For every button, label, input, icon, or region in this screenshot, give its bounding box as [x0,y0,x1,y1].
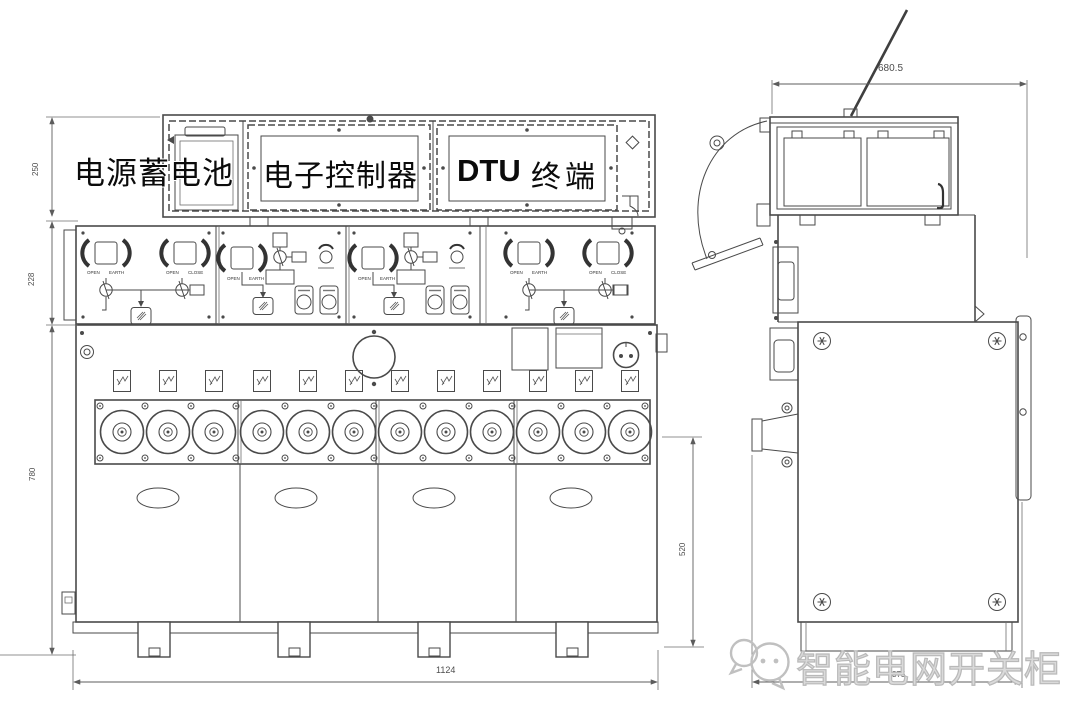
side-view [662,10,1031,688]
dim-overall-width: 1124 [436,665,455,675]
knob-label-open: OPEN [87,270,100,275]
cable-spout [762,414,798,453]
knob-label-close: CLOSE [188,270,203,275]
knob-label-earth: EARTH [249,276,264,281]
watermark-text: 智能电网开关柜 [796,639,1062,693]
knob-label-close: CLOSE [611,270,626,275]
open-lid [692,121,767,270]
nameplate-ratings [556,328,602,368]
side-body [752,316,1031,651]
watermark-logo-icon [731,640,789,688]
dim-body-height: 780 [28,468,37,481]
vent-diamond-icon [626,136,639,149]
cabinet-body [62,325,667,657]
lower-door-area [62,464,592,622]
bushing-strip [95,400,652,464]
knob-label-open: OPEN [227,276,240,281]
battery-compartment-label: 电源蓄电池 [74,148,234,193]
front-view [0,115,667,690]
lift-hole [137,488,179,508]
drawing-lineart [0,0,1082,714]
lift-hole [550,488,592,508]
dim-side-top-width: 680.5 [878,63,903,74]
knob-label-earth: EARTH [532,270,547,275]
side-neck [773,215,984,322]
knob-label-open: OPEN [589,270,602,275]
dtu-terminal-label-cn: 终端 [531,152,599,196]
panel-a1 [81,231,210,324]
heater-socket-icon [614,343,639,368]
base-frame [73,622,658,657]
mechanism-ports-row [114,371,639,392]
panel-b2 [349,231,471,318]
switchgear-drawing: 电源蓄电池 电子控制器 DTU 终端 250 228 780 1124 680.… [0,0,1082,714]
side-dimensions [662,80,1027,688]
lift-hole [275,488,317,508]
lift-hole [413,488,455,508]
dim-panel-row-height: 228 [27,273,36,286]
knob-label-earth: EARTH [380,276,395,281]
dim-top-box-height: 250 [31,163,40,176]
panel-a2 [504,231,633,324]
controller-compartment-label: 电子控制器 [263,151,418,195]
knob-label-open: OPEN [510,270,523,275]
knob-label-earth: EARTH [109,270,124,275]
hook-icon [937,184,943,208]
knob-label-open: OPEN [166,270,179,275]
knob-label-open: OPEN [358,276,371,281]
door-hook-icon [622,196,638,216]
dtu-terminal-label-latin: DTU [457,153,521,189]
bushing-bolts [97,403,648,461]
panel-b1 [218,231,340,318]
nameplate-wiring [512,328,548,370]
dim-side-body-height: 520 [678,543,687,556]
side-top-box [709,117,959,259]
